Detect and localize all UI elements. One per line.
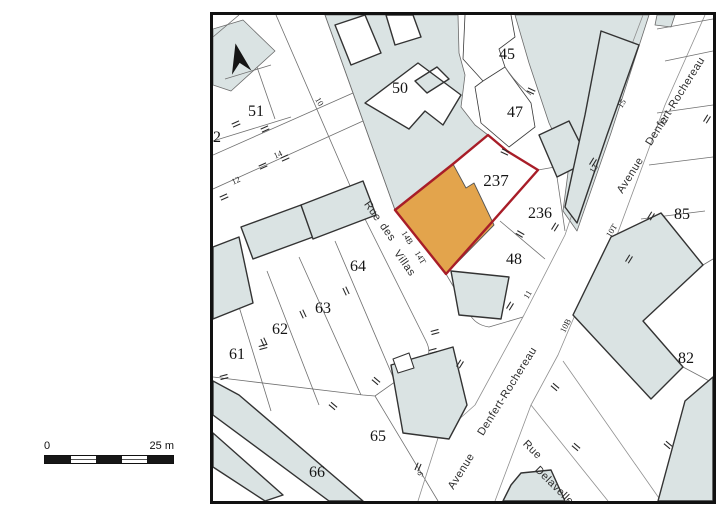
scale-bar-distance-label: 25 m [150, 440, 174, 452]
boundary-tick [516, 231, 525, 238]
parcel-num-label: 51 [248, 103, 264, 120]
scale-bar: 0 25 m [44, 440, 174, 464]
street-name-label: Denfert-Rochereau [475, 345, 539, 438]
map-frame: 454750512237236486463626166658582 Ruedes… [210, 12, 716, 504]
boundary-tick [261, 126, 270, 132]
parcel-num-label: 61 [229, 346, 245, 363]
parcel-num-label: 85 [674, 206, 690, 223]
street-name-label: des [377, 221, 398, 244]
boundary-tick [343, 287, 349, 296]
street-name-label: Avenue [446, 451, 477, 491]
boundary-tick [552, 223, 559, 231]
parcel-num-label: 82 [678, 350, 694, 367]
parcel-num-label: 47 [507, 104, 523, 121]
building [658, 377, 713, 501]
building [213, 381, 363, 501]
addr-num-label: 10B [558, 317, 574, 334]
street-name-label: Denfert-Rochereau [643, 55, 707, 148]
parcel-num-label: 64 [350, 258, 366, 275]
parcel-num-label: 236 [528, 205, 552, 222]
boundary-tick [507, 302, 514, 310]
parcel-num-label: 63 [315, 300, 331, 317]
parcel-num-label: 62 [272, 321, 288, 338]
cadastral-map: 454750512237236486463626166658582 Ruedes… [213, 15, 713, 501]
boundary-tick [572, 443, 580, 451]
street-name-label: Rue [520, 438, 544, 462]
scale-segment [147, 456, 173, 463]
parcel-num-label: 237 [483, 171, 509, 190]
scale-segment [45, 456, 71, 463]
street-name-label: Avenue [615, 155, 646, 195]
boundary-tick [232, 121, 241, 127]
parcel-num-label: 48 [506, 251, 522, 268]
block-avenue-east-top [655, 15, 675, 27]
scale-segment [96, 456, 122, 463]
scale-bar-zero-label: 0 [44, 440, 50, 452]
parcel-num-label: 2 [213, 129, 221, 146]
addr-num-label: 14 [272, 148, 285, 161]
boundary-tick [551, 383, 559, 391]
parcel-num-label: 50 [392, 80, 408, 97]
building [573, 213, 703, 399]
parcel-num-label: 66 [309, 464, 325, 481]
boundary-tick [259, 344, 268, 349]
parcel-num-label: 65 [370, 428, 386, 445]
boundary-tick [372, 377, 380, 385]
building [451, 271, 509, 319]
boundary-tick [704, 115, 711, 123]
boundary-tick [329, 402, 337, 410]
parcel-num-label: 45 [499, 46, 515, 63]
boundary-tick [220, 194, 229, 200]
boundary-tick [300, 310, 306, 319]
building [213, 237, 253, 319]
cadastral-map-page: 0 25 m [0, 0, 728, 515]
scale-bar-segments [44, 455, 174, 464]
addr-num-label: 14T [413, 249, 429, 267]
scale-segment [71, 456, 97, 463]
boundary-tick [664, 441, 672, 449]
boundary-tick [431, 329, 440, 334]
addr-num-label: 12 [230, 174, 242, 187]
building [241, 205, 313, 259]
block-north-arrow-area [213, 20, 275, 91]
scale-segment [122, 456, 148, 463]
